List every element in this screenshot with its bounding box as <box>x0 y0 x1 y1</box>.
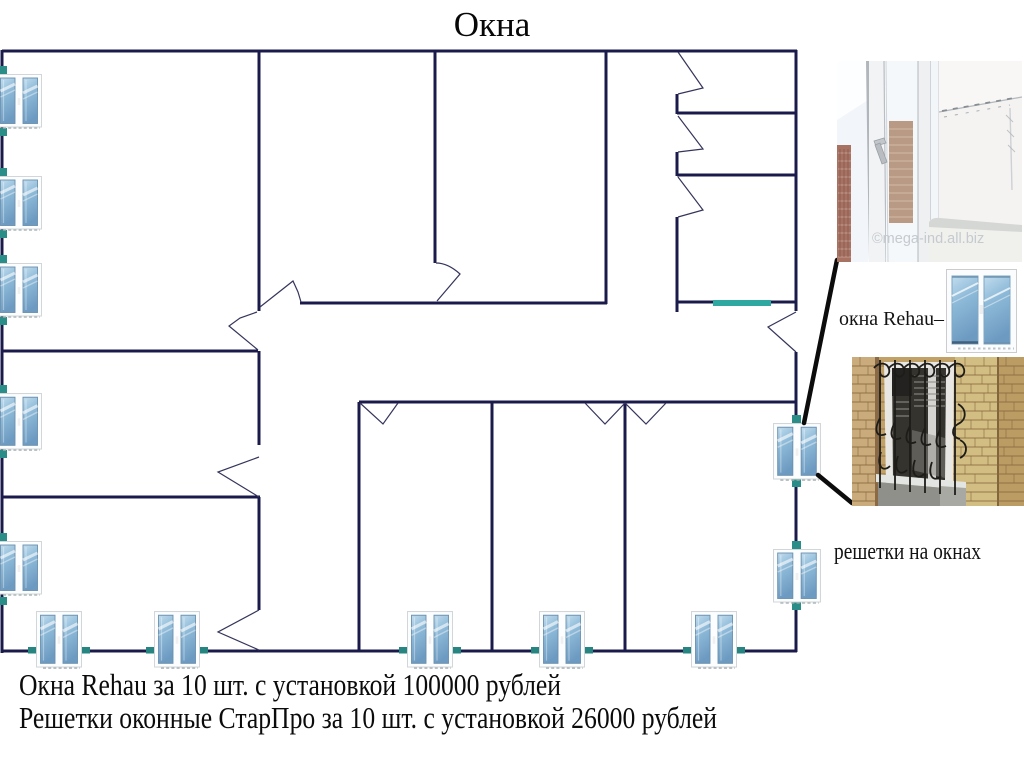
svg-text:Окна: Окна <box>454 5 531 44</box>
svg-text:©mega-ind.all.biz: ©mega-ind.all.biz <box>872 231 984 247</box>
svg-text:Решетки оконные СтарПро за 10: Решетки оконные СтарПро за 10 шт. с уста… <box>19 701 717 735</box>
svg-text:решетки на окнах: решетки на окнах <box>834 539 981 565</box>
svg-text:окна Rehau–: окна Rehau– <box>839 308 945 330</box>
svg-text:Окна Rehau за 10 шт. с установ: Окна Rehau за 10 шт. с установкой 100000… <box>19 668 561 702</box>
